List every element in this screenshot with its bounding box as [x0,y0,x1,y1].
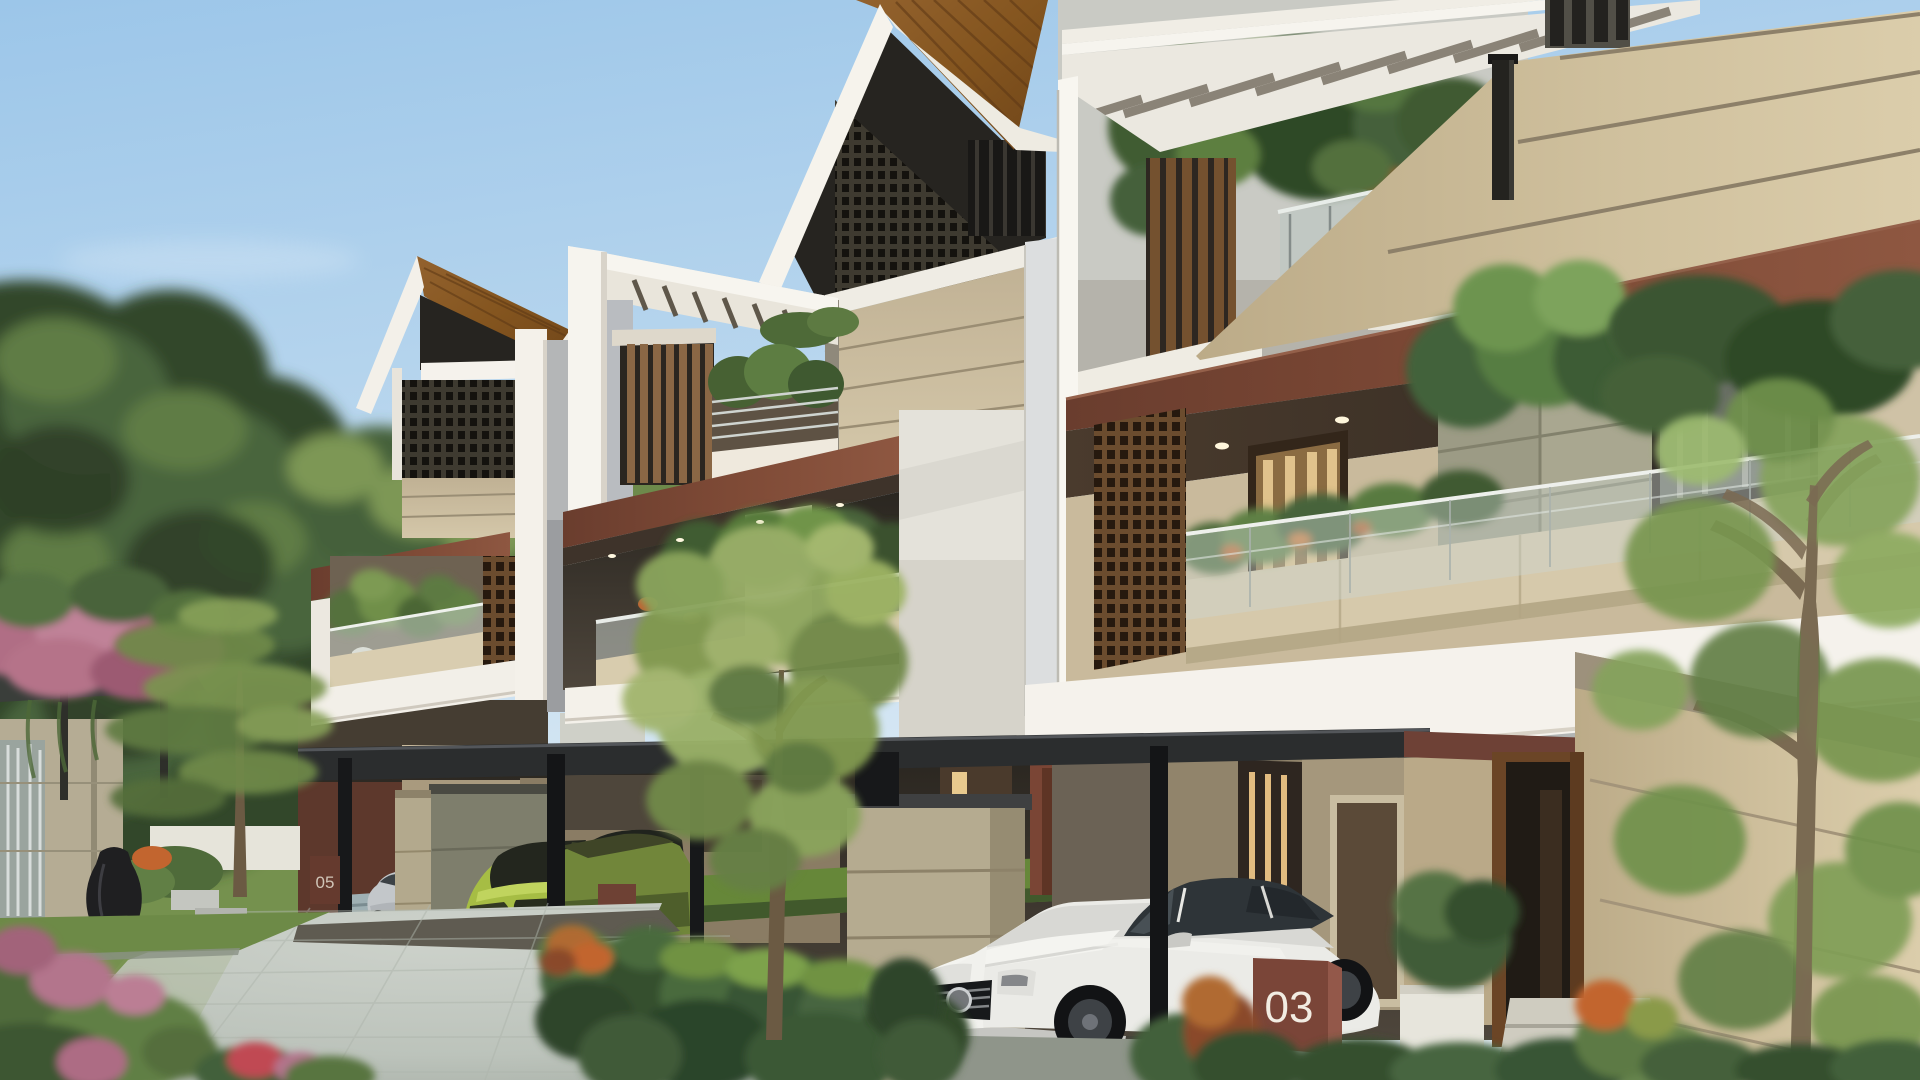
svg-text:03: 03 [1265,983,1314,1032]
svg-text:05: 05 [316,873,335,892]
